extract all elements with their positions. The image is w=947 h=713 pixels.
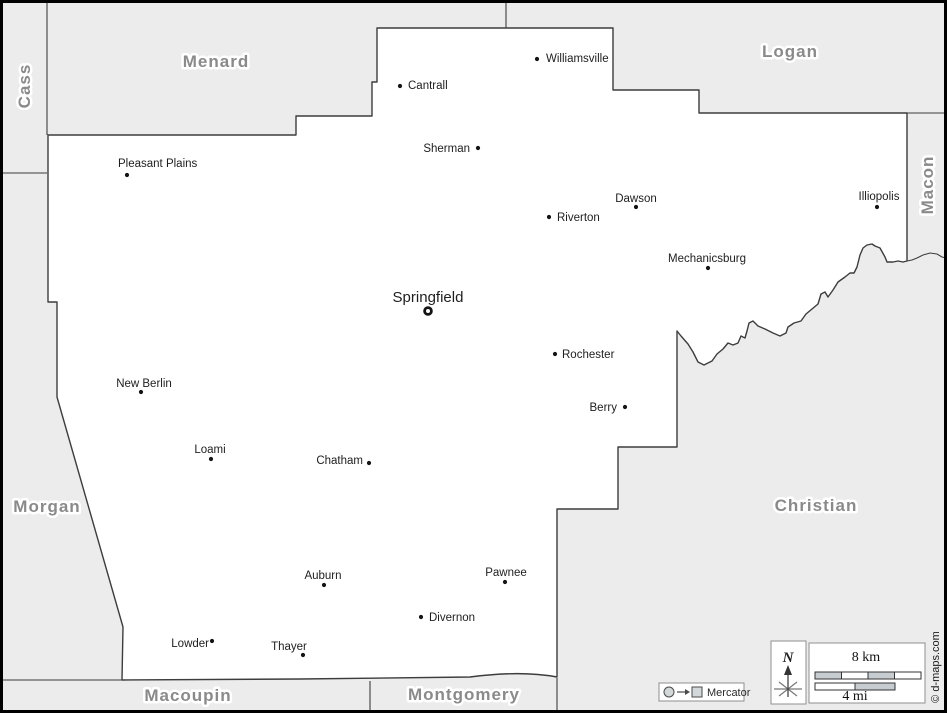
city-label-pleasant-plains: Pleasant Plains [118, 158, 198, 170]
city-dot-icon [209, 457, 213, 461]
city-chatham: Chatham [316, 455, 371, 467]
city-label-riverton: Riverton [557, 212, 600, 224]
county-label-macon: Macon [918, 156, 937, 215]
city-dot-icon [367, 461, 371, 465]
city-dot-icon [503, 580, 507, 584]
city-label-dawson: Dawson [615, 193, 657, 205]
county-label-christian: Christian [775, 496, 858, 515]
city-dot-icon [139, 390, 143, 394]
city-dot-icon [547, 215, 551, 219]
projection-label: Mercator [707, 687, 751, 699]
projection-legend: Mercator [659, 683, 751, 701]
county-label-morgan: Morgan [13, 497, 80, 516]
city-lowder: Lowder [171, 638, 214, 650]
city-dot-icon [210, 639, 214, 643]
city-label-berry: Berry [590, 402, 618, 414]
city-dot-icon [419, 615, 423, 619]
city-label-mechanicsburg: Mechanicsburg [668, 253, 746, 265]
scale-km-label: 8 km [852, 650, 881, 665]
scale-mi-label: 4 mi [842, 689, 867, 704]
city-label-sherman: Sherman [423, 143, 470, 155]
city-label-lowder: Lowder [171, 638, 209, 650]
city-dot-icon [706, 266, 710, 270]
city-dot-icon [535, 57, 539, 61]
scale-km-bar [815, 672, 921, 679]
city-dot-icon [301, 653, 305, 657]
city-label-auburn: Auburn [304, 570, 341, 582]
scale-bar: 8 km 4 mi [809, 643, 925, 704]
copyright-label: © d-maps.com [930, 631, 942, 703]
county-map-svg: CassMenardLoganMaconMorganChristianMacou… [0, 0, 947, 713]
city-dot-icon [623, 405, 627, 409]
city-dot-icon [398, 84, 402, 88]
flat-map-square-icon [692, 687, 702, 697]
county-label-montgomery: Montgomery [408, 685, 520, 704]
city-label-rochester: Rochester [562, 349, 615, 361]
globe-circle-icon [664, 687, 674, 697]
city-dot-icon [634, 205, 638, 209]
city-label-cantrall: Cantrall [408, 80, 448, 92]
north-label: N [782, 650, 795, 666]
city-dot-icon [875, 205, 879, 209]
county-label-cass: Cass [15, 64, 34, 109]
city-label-divernon: Divernon [429, 612, 475, 624]
city-label-new-berlin: New Berlin [116, 378, 172, 390]
county-seat-marker-icon [425, 308, 432, 315]
city-dot-icon [125, 173, 129, 177]
city-label-williamsville: Williamsville [546, 53, 609, 65]
city-label-chatham: Chatham [316, 455, 363, 467]
city-dot-icon [553, 352, 557, 356]
city-label-illiopolis: Illiopolis [859, 191, 900, 203]
county-label-macoupin: Macoupin [144, 686, 231, 705]
city-rochester: Rochester [553, 349, 615, 361]
north-arrow: N [771, 641, 806, 704]
city-williamsville: Williamsville [535, 53, 609, 65]
city-label-springfield: Springfield [393, 289, 464, 306]
city-label-thayer: Thayer [271, 641, 307, 653]
city-dot-icon [476, 146, 480, 150]
city-label-loami: Loami [194, 444, 225, 456]
county-label-logan: Logan [762, 42, 818, 61]
county-label-menard: Menard [183, 52, 249, 71]
city-dot-icon [322, 583, 326, 587]
city-label-pawnee: Pawnee [485, 567, 527, 579]
map-stage: CassMenardLoganMaconMorganChristianMacou… [0, 0, 947, 713]
